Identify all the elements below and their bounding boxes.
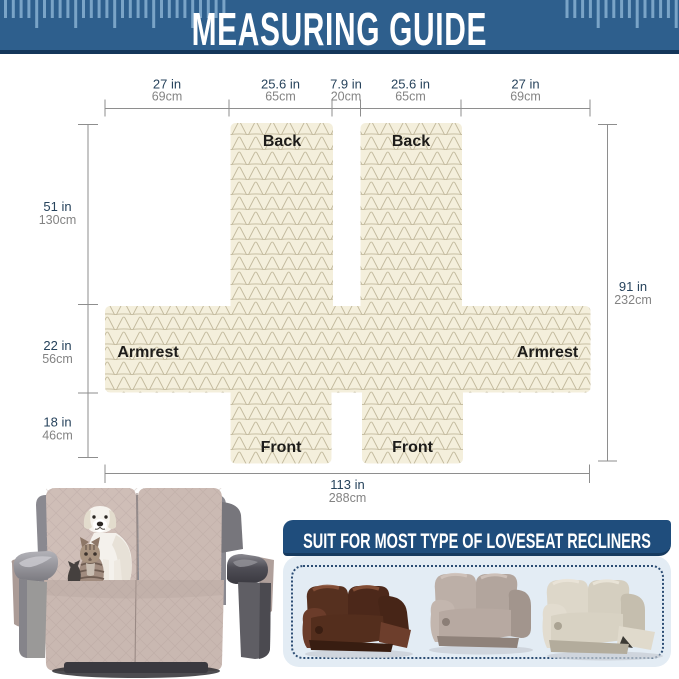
svg-text:91 in: 91 in bbox=[619, 279, 647, 294]
svg-text:Back: Back bbox=[392, 133, 430, 150]
svg-text:288cm: 288cm bbox=[329, 491, 367, 505]
svg-text:Back: Back bbox=[263, 133, 301, 150]
svg-text:69cm: 69cm bbox=[510, 90, 541, 104]
svg-text:Front: Front bbox=[261, 439, 303, 456]
svg-text:113 in: 113 in bbox=[330, 477, 364, 492]
svg-text:18 in: 18 in bbox=[43, 415, 71, 430]
svg-text:51 in: 51 in bbox=[43, 199, 71, 214]
svg-text:46cm: 46cm bbox=[42, 429, 73, 443]
svg-text:20cm: 20cm bbox=[331, 90, 362, 104]
svg-text:65cm: 65cm bbox=[265, 90, 296, 104]
svg-text:Armrest: Armrest bbox=[517, 344, 579, 361]
svg-text:Front: Front bbox=[392, 439, 434, 456]
svg-text:65cm: 65cm bbox=[395, 90, 426, 104]
svg-text:22 in: 22 in bbox=[43, 338, 71, 353]
svg-text:130cm: 130cm bbox=[39, 213, 77, 227]
svg-text:Armrest: Armrest bbox=[117, 344, 179, 361]
svg-text:56cm: 56cm bbox=[42, 352, 73, 366]
svg-text:69cm: 69cm bbox=[152, 90, 183, 104]
svg-text:232cm: 232cm bbox=[614, 293, 652, 307]
